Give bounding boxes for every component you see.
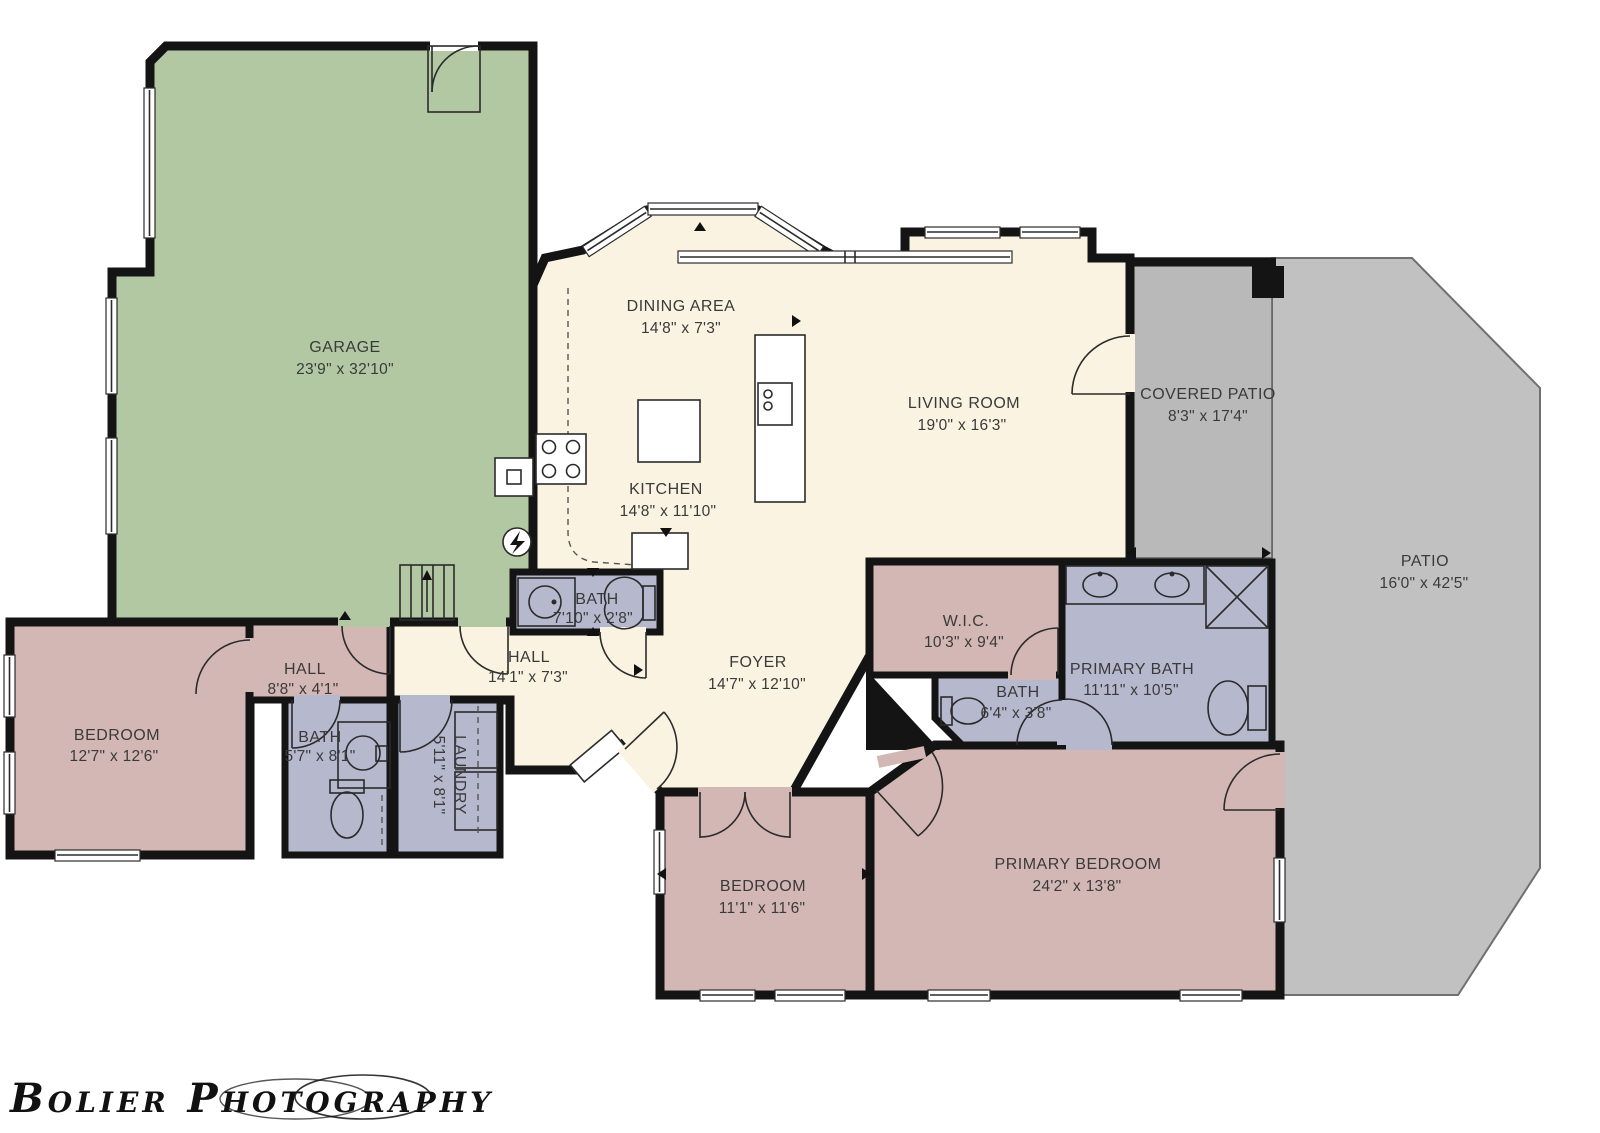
- label-garage: GARAGE: [309, 339, 380, 356]
- dims-kitchen: 14'8" x 11'10": [620, 503, 717, 520]
- dims-dining: 14'8" x 7'3": [641, 320, 721, 337]
- label-kitchen: KITCHEN: [629, 481, 703, 498]
- dims-patio: 16'0" x 42'5": [1380, 575, 1469, 592]
- label-primary-bedroom: PRIMARY BEDROOM: [995, 856, 1162, 873]
- label-bedroom-front: BEDROOM: [720, 878, 806, 895]
- label-foyer: FOYER: [729, 654, 787, 671]
- kitchen-island: [638, 400, 700, 462]
- label-wic: W.I.C.: [943, 613, 990, 630]
- dims-wic: 10'3" x 9'4": [924, 634, 1004, 651]
- fridge: [632, 533, 688, 569]
- dims-bedroom-left: 12'7" x 12'6": [70, 748, 159, 765]
- dims-laundry: 5'11" x 8'1": [430, 736, 447, 815]
- dims-hall-left: 8'8" x 4'1": [267, 681, 338, 698]
- dims-primary-bath: 11'11" x 10'5": [1083, 682, 1179, 699]
- label-patio: PATIO: [1401, 553, 1449, 570]
- dims-hall-bath: 7'10" x 2'8": [553, 610, 633, 627]
- label-dining: DINING AREA: [627, 298, 736, 315]
- dims-primary-wc: 6'4" x 3'8": [980, 705, 1051, 722]
- stove: [536, 434, 586, 484]
- dims-bedroom-front: 11'1" x 11'6": [719, 900, 806, 917]
- dims-guest-bath: 5'7" x 8'1": [284, 748, 355, 765]
- label-hall-bath: BATH: [575, 591, 618, 608]
- floor-plan-page: GARAGE 23'9" x 32'10" DINING AREA 14'8" …: [0, 0, 1600, 1133]
- room-garage: [112, 46, 533, 622]
- dims-foyer: 14'7" x 12'10": [708, 676, 806, 693]
- label-hall-left: HALL: [284, 661, 326, 678]
- floor-plan: GARAGE 23'9" x 32'10" DINING AREA 14'8" …: [0, 0, 1600, 1133]
- watermark-text: Bolier Photography: [9, 1075, 494, 1122]
- label-living: LIVING ROOM: [908, 395, 1020, 412]
- label-primary-wc: BATH: [996, 684, 1039, 701]
- angled-wall-wedge: [866, 670, 940, 750]
- label-primary-bath: PRIMARY BATH: [1070, 661, 1194, 678]
- utility-sink: [495, 458, 533, 496]
- label-guest-bath: BATH: [298, 729, 341, 746]
- label-laundry: LAUNDRY: [451, 735, 468, 815]
- kitchen-peninsula: [755, 335, 805, 502]
- dims-primary-bedroom: 24'2" x 13'8": [1033, 878, 1122, 895]
- watermark-logo: Bolier Photography: [9, 1075, 494, 1122]
- patio-post: [1252, 266, 1284, 298]
- room-patio: [1272, 258, 1540, 995]
- dims-hall-main: 14'1" x 7'3": [488, 669, 568, 686]
- room-primary-bath: [1062, 562, 1272, 745]
- dims-living: 19'0" x 16'3": [918, 417, 1007, 434]
- label-hall-main: HALL: [508, 649, 550, 666]
- label-bedroom-left: BEDROOM: [74, 727, 160, 744]
- label-covered-patio: COVERED PATIO: [1140, 386, 1276, 403]
- dims-garage: 23'9" x 32'10": [296, 361, 394, 378]
- dims-covered-patio: 8'3" x 17'4": [1168, 408, 1248, 425]
